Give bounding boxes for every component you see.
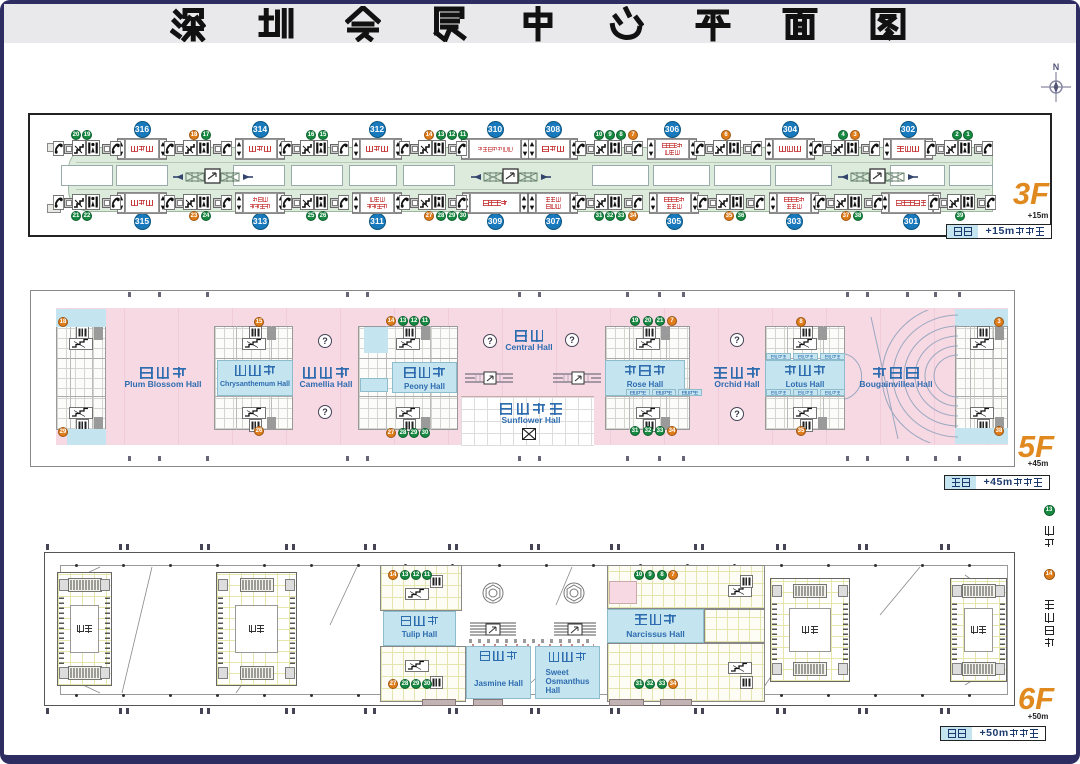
svg-text:N: N bbox=[1053, 62, 1060, 72]
